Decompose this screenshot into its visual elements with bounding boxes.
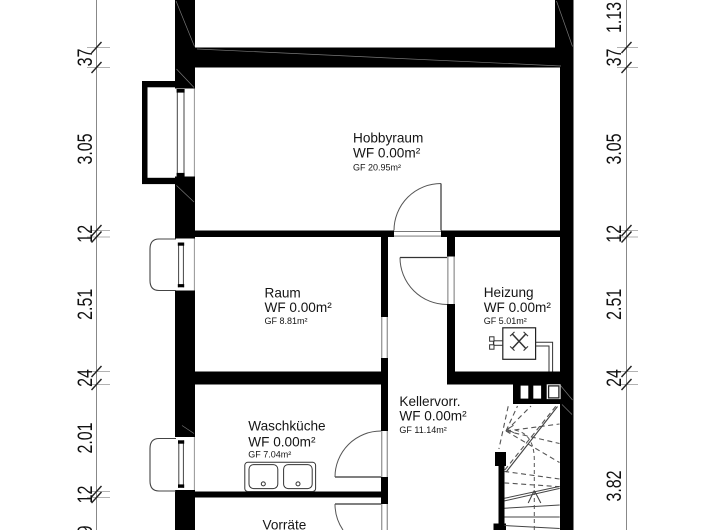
svg-text:24: 24 bbox=[73, 369, 97, 387]
svg-text:2.51: 2.51 bbox=[602, 289, 626, 320]
svg-text:Hobbyraum: Hobbyraum bbox=[353, 131, 423, 146]
svg-text:2.39: 2.39 bbox=[73, 525, 97, 530]
svg-text:GF 7.04m²: GF 7.04m² bbox=[248, 450, 291, 460]
svg-text:12: 12 bbox=[602, 225, 626, 243]
svg-text:WF 0.00m²: WF 0.00m² bbox=[484, 300, 552, 315]
svg-text:Heizung: Heizung bbox=[484, 285, 534, 300]
svg-text:Kellervorr.: Kellervorr. bbox=[399, 394, 460, 409]
svg-text:24: 24 bbox=[602, 369, 626, 387]
svg-text:Raum: Raum bbox=[265, 286, 301, 301]
svg-text:WF 0.00m²: WF 0.00m² bbox=[399, 409, 467, 424]
svg-text:WF 0.00m²: WF 0.00m² bbox=[265, 300, 333, 315]
svg-text:WF 0.00m²: WF 0.00m² bbox=[248, 434, 316, 449]
svg-text:3.05: 3.05 bbox=[73, 133, 97, 164]
svg-text:1.13: 1.13 bbox=[602, 2, 626, 33]
svg-text:37: 37 bbox=[602, 49, 626, 67]
svg-text:WF 0.00m²: WF 0.00m² bbox=[353, 145, 421, 160]
svg-text:2.51: 2.51 bbox=[73, 289, 97, 320]
svg-text:GF 5.01m²: GF 5.01m² bbox=[484, 316, 527, 326]
svg-text:GF 20.95m²: GF 20.95m² bbox=[353, 163, 401, 173]
svg-text:GF 8.81m²: GF 8.81m² bbox=[265, 316, 308, 326]
svg-text:12: 12 bbox=[73, 225, 97, 243]
svg-text:Waschküche: Waschküche bbox=[248, 419, 325, 434]
svg-text:12: 12 bbox=[73, 486, 97, 504]
svg-text:Vorräte: Vorräte bbox=[263, 518, 307, 530]
svg-text:37: 37 bbox=[73, 49, 97, 67]
svg-text:3.82: 3.82 bbox=[602, 470, 626, 501]
svg-text:GF 11.14m²: GF 11.14m² bbox=[399, 425, 446, 435]
svg-text:3.05: 3.05 bbox=[602, 133, 626, 164]
svg-text:2.01: 2.01 bbox=[73, 422, 97, 453]
